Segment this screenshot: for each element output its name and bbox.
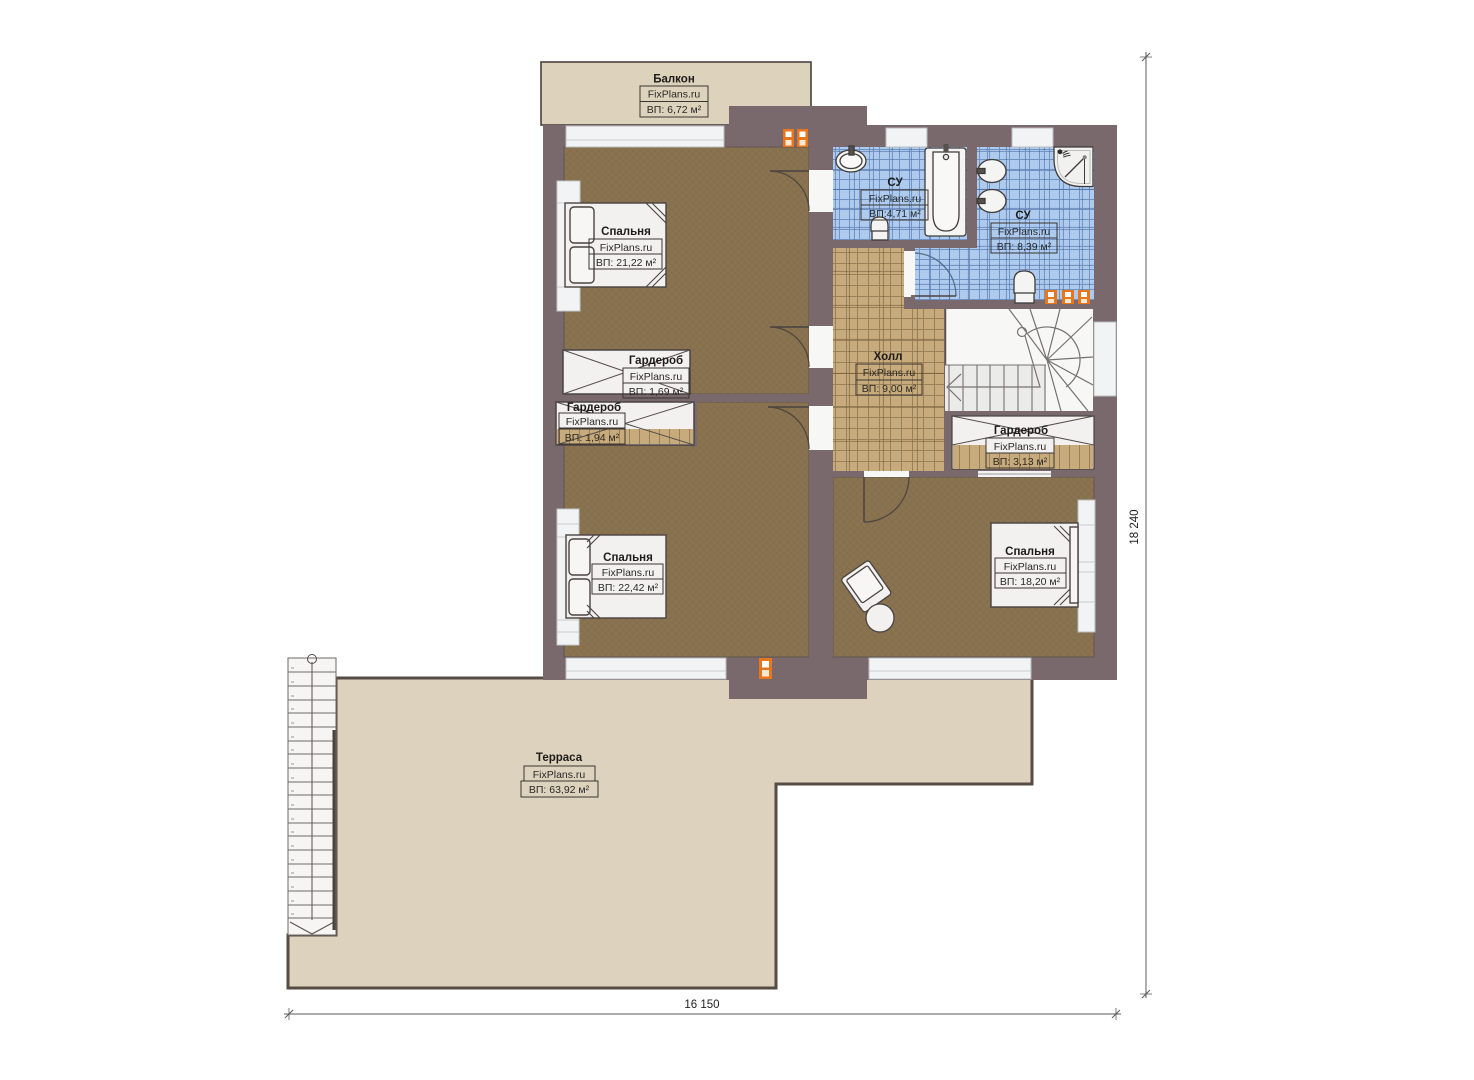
svg-text:FixPlans.ru: FixPlans.ru [1004,561,1057,573]
svg-text:ВП: 8,39 м²: ВП: 8,39 м² [997,241,1052,253]
svg-text:ВП: 6,72 м²: ВП: 6,72 м² [647,104,702,116]
svg-text:ВП: 21,22 м²: ВП: 21,22 м² [596,257,657,269]
svg-text:FixPlans.ru: FixPlans.ru [994,441,1047,453]
svg-text:FixPlans.ru: FixPlans.ru [566,416,619,428]
svg-text:Балкон: Балкон [653,74,695,86]
svg-text:16 150: 16 150 [684,999,719,1011]
svg-text:Спальня: Спальня [1005,546,1055,558]
svg-text:СУ: СУ [1015,210,1031,222]
svg-text:ВП: 18,20 м²: ВП: 18,20 м² [1000,576,1061,588]
svg-text:FixPlans.ru: FixPlans.ru [533,769,586,781]
svg-text:Терраса: Терраса [536,752,583,764]
svg-text:FixPlans.ru: FixPlans.ru [630,371,683,383]
svg-text:ВП: 63,92 м²: ВП: 63,92 м² [529,784,590,796]
svg-text:FixPlans.ru: FixPlans.ru [869,193,922,205]
svg-text:Гардероб: Гардероб [994,425,1048,437]
svg-text:Гардероб: Гардероб [567,402,621,414]
svg-text:Спальня: Спальня [601,226,651,238]
svg-text:ВП: 9,00 м²: ВП: 9,00 м² [862,383,917,395]
svg-text:FixPlans.ru: FixPlans.ru [648,89,701,101]
svg-text:СУ: СУ [887,177,903,189]
svg-text:FixPlans.ru: FixPlans.ru [602,567,655,579]
svg-text:Гардероб: Гардероб [629,355,683,367]
svg-text:FixPlans.ru: FixPlans.ru [600,242,653,254]
svg-text:18 240: 18 240 [1129,509,1141,544]
svg-text:ВП: 1,69 м²: ВП: 1,69 м² [629,386,684,398]
svg-text:FixPlans.ru: FixPlans.ru [998,226,1051,238]
svg-text:ВП: 22,42 м²: ВП: 22,42 м² [598,582,659,594]
svg-text:Спальня: Спальня [603,552,653,564]
svg-text:FixPlans.ru: FixPlans.ru [863,367,916,379]
svg-text:ВП: 3,13 м²: ВП: 3,13 м² [993,456,1048,468]
svg-text:ВП:4,71 м²: ВП:4,71 м² [869,208,921,220]
svg-text:ВП: 1,94 м²: ВП: 1,94 м² [565,432,620,444]
svg-text:Холл: Холл [874,351,903,363]
